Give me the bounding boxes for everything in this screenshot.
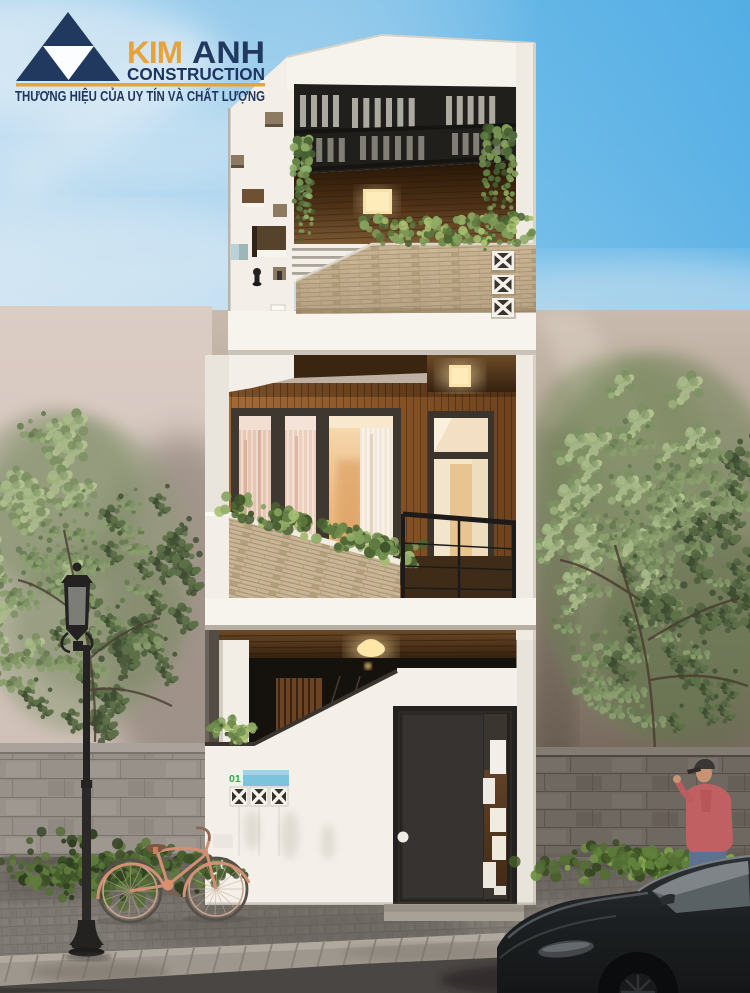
svg-text:THƯƠNG HIỆU CỦA UY TÍN VÀ CHẤT: THƯƠNG HIỆU CỦA UY TÍN VÀ CHẤT LƯỢNG	[15, 87, 265, 105]
svg-text:CONSTRUCTION: CONSTRUCTION	[127, 64, 265, 84]
svg-text:01: 01	[229, 773, 241, 785]
